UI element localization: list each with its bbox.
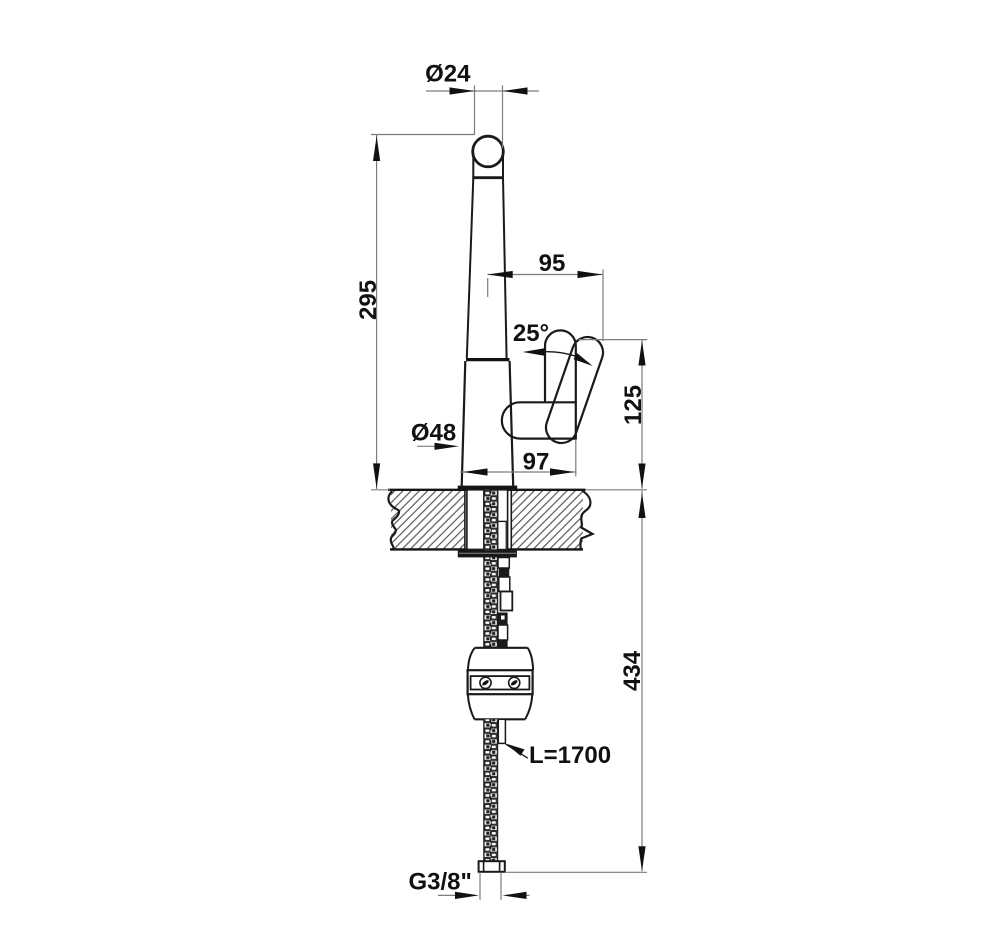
svg-text:G3/8": G3/8" — [409, 869, 472, 896]
svg-text:95: 95 — [539, 250, 566, 277]
svg-text:125: 125 — [620, 385, 647, 425]
svg-text:25°: 25° — [513, 320, 549, 347]
svg-text:295: 295 — [355, 280, 382, 320]
svg-text:L=1700: L=1700 — [529, 742, 611, 769]
svg-text:Ø48: Ø48 — [411, 420, 456, 447]
svg-text:Ø24: Ø24 — [425, 60, 471, 87]
